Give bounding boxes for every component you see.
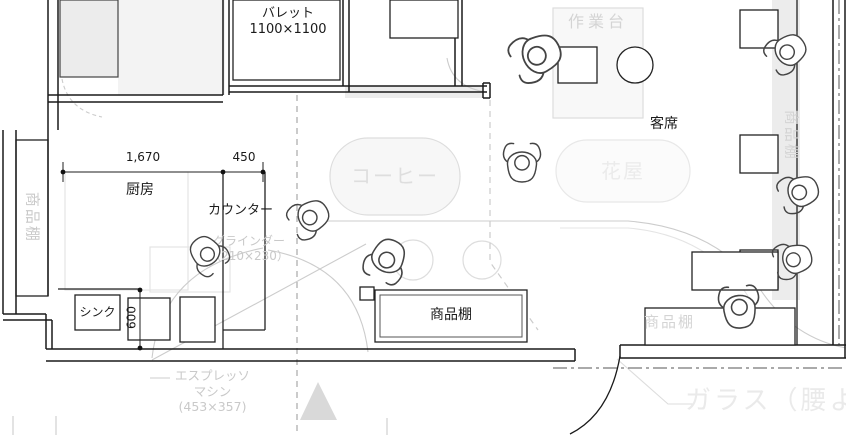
person-figure: [761, 26, 814, 79]
person-figure: [775, 168, 824, 216]
floor-plan: バレット 1100×1100 作業台 客席 コーヒー 花屋 厨房 カウンター グ…: [0, 0, 846, 435]
person-figure: [284, 192, 336, 243]
person-figure: [717, 284, 761, 329]
people-overlay: [0, 0, 846, 435]
person-figure: [503, 143, 540, 182]
person-figure: [771, 238, 816, 282]
person-figure: [360, 233, 414, 288]
person-figure: [505, 25, 568, 87]
person-figure: [182, 229, 233, 280]
